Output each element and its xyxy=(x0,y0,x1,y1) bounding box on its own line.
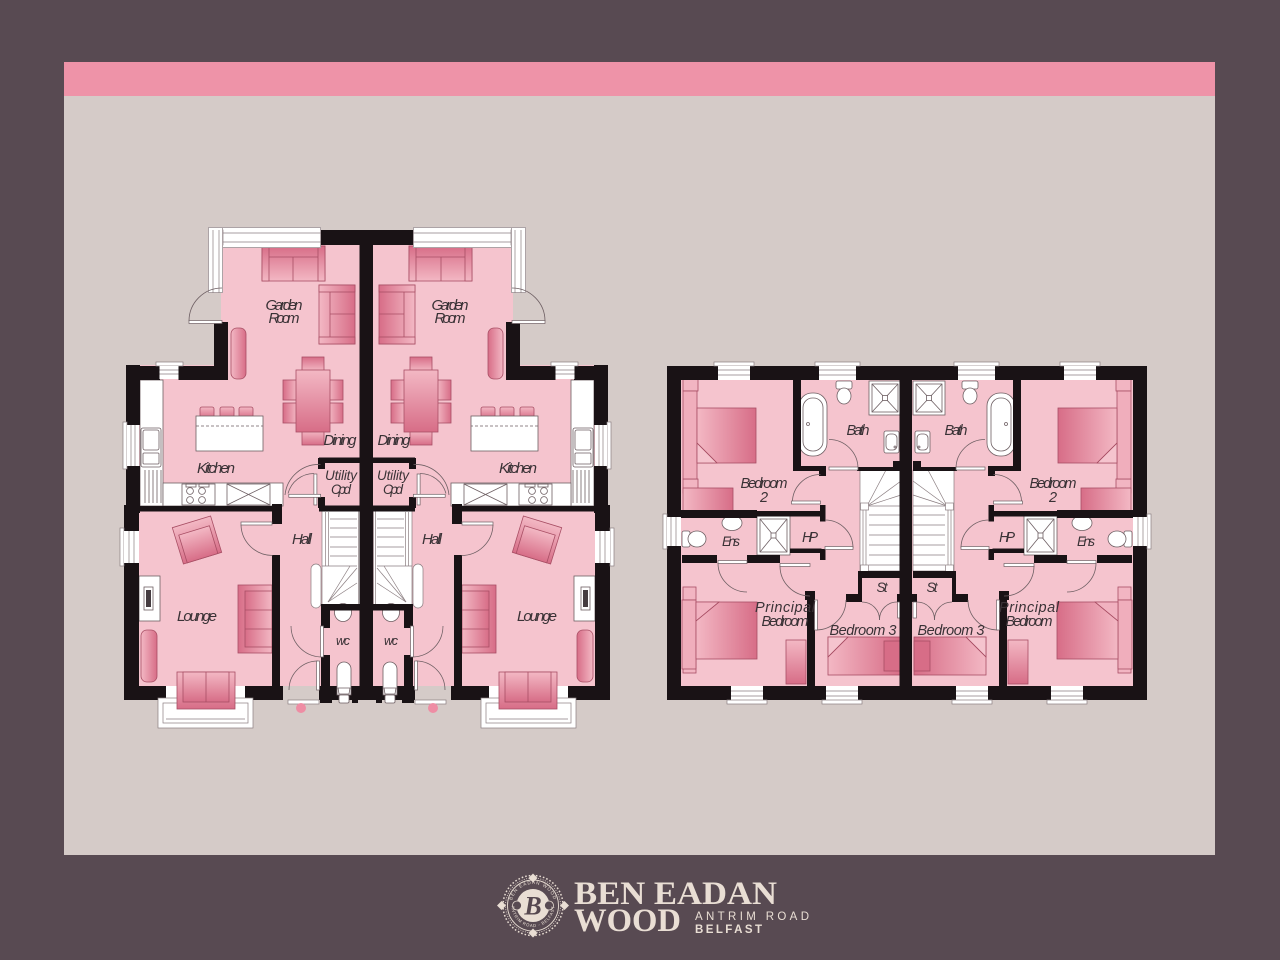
svg-text:wc: wc xyxy=(384,634,399,648)
svg-text:Kitchen: Kitchen xyxy=(197,460,235,477)
svg-text:St: St xyxy=(927,580,939,595)
svg-text:Dining: Dining xyxy=(324,432,358,449)
svg-text:Bath: Bath xyxy=(847,423,870,439)
svg-text:Bedroom 3: Bedroom 3 xyxy=(830,623,897,639)
svg-text:Lounge: Lounge xyxy=(517,608,557,625)
svg-text:Utility: Utility xyxy=(377,468,410,483)
svg-text:Cpd: Cpd xyxy=(331,482,351,497)
svg-text:B: B xyxy=(523,892,541,921)
svg-text:Hall: Hall xyxy=(422,531,443,548)
svg-text:Room: Room xyxy=(435,310,466,327)
svg-text:Room: Room xyxy=(269,310,300,327)
svg-text:Bath: Bath xyxy=(945,423,968,439)
svg-text:Bedroom: Bedroom xyxy=(762,614,809,630)
svg-text:Bedroom 3: Bedroom 3 xyxy=(918,623,985,639)
svg-text:2: 2 xyxy=(1048,490,1057,506)
svg-text:Lounge: Lounge xyxy=(177,608,217,625)
svg-text:Dining: Dining xyxy=(378,432,412,449)
svg-text:2: 2 xyxy=(759,490,768,506)
svg-text:Ens: Ens xyxy=(1077,534,1095,549)
svg-text:BELFAST: BELFAST xyxy=(695,924,762,936)
svg-text:ANTRIM ROAD: ANTRIM ROAD xyxy=(695,911,809,923)
svg-text:St: St xyxy=(877,580,889,595)
svg-text:Ens: Ens xyxy=(722,534,740,549)
svg-text:Bedroom: Bedroom xyxy=(1006,614,1053,630)
svg-text:Kitchen: Kitchen xyxy=(499,460,537,477)
svg-text:Utility: Utility xyxy=(325,468,358,483)
svg-text:WOOD: WOOD xyxy=(574,903,681,939)
svg-text:Cpd: Cpd xyxy=(383,482,403,497)
svg-text:wc: wc xyxy=(336,634,351,648)
svg-text:HP: HP xyxy=(999,530,1015,546)
svg-text:HP: HP xyxy=(802,530,818,546)
svg-text:Hall: Hall xyxy=(292,531,313,548)
